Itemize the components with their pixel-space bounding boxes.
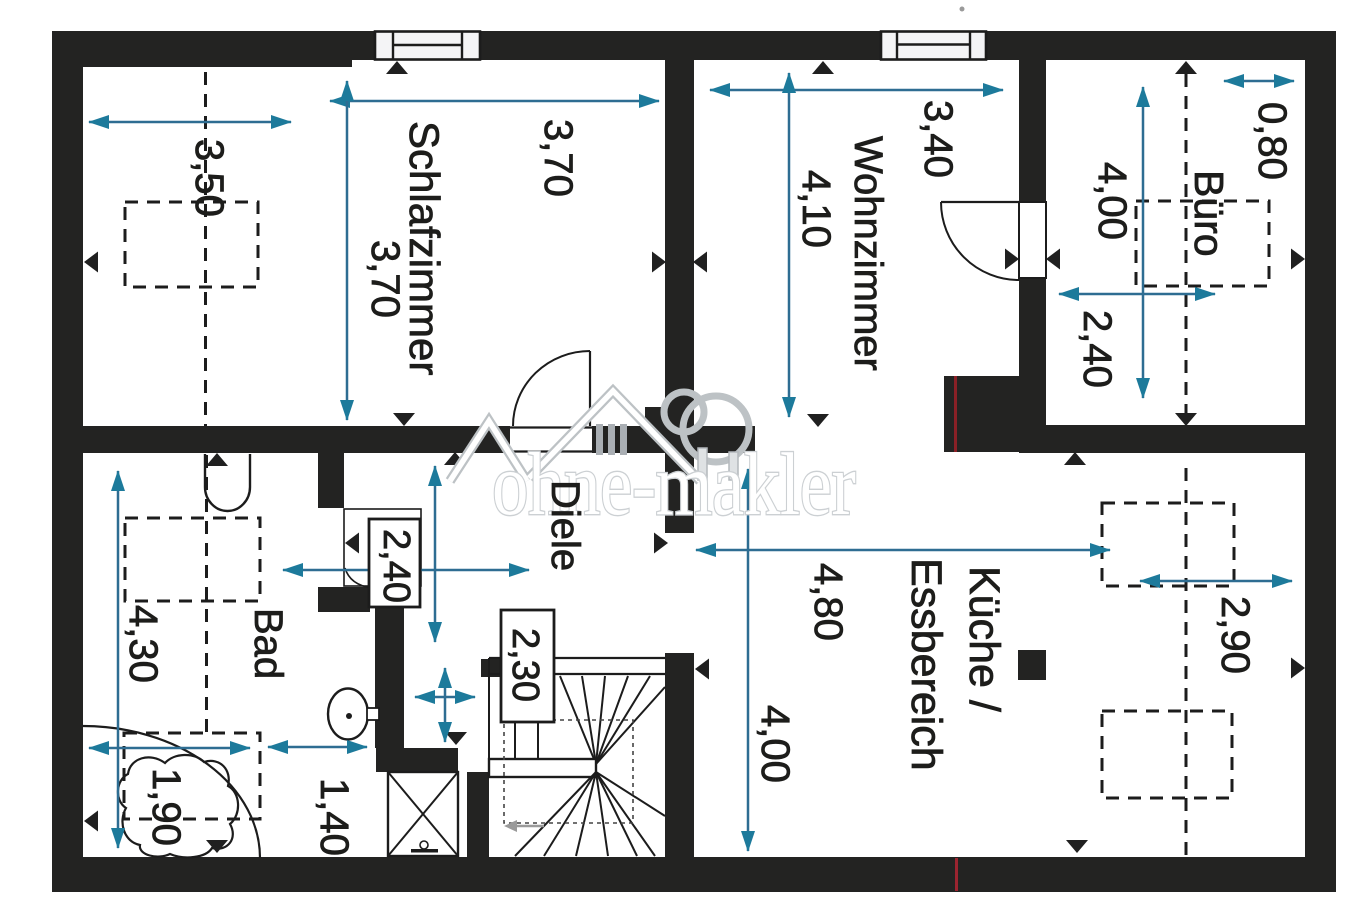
svg-text:Büro: Büro (1186, 170, 1232, 257)
svg-text:2,30: 2,30 (504, 628, 546, 702)
svg-text:2,40: 2,40 (1075, 310, 1119, 388)
svg-text:Diele: Diele (543, 480, 587, 571)
svg-text:4,10: 4,10 (794, 170, 838, 248)
svg-text:4,30: 4,30 (121, 605, 165, 683)
svg-text:Schlafzimmer: Schlafzimmer (401, 121, 448, 375)
svg-text:Essbereich: Essbereich (902, 558, 950, 771)
svg-text:3,50: 3,50 (187, 139, 231, 217)
svg-text:4,00: 4,00 (753, 705, 797, 783)
svg-text:3,70: 3,70 (363, 240, 407, 318)
svg-text:1,40: 1,40 (312, 778, 356, 856)
svg-text:Küche /: Küche / (960, 566, 1008, 712)
svg-text:2,40: 2,40 (375, 529, 417, 603)
svg-text:1,90: 1,90 (144, 768, 188, 846)
svg-text:3,40: 3,40 (916, 100, 960, 178)
svg-text:4,00: 4,00 (1090, 162, 1134, 240)
svg-text:4,80: 4,80 (806, 563, 850, 641)
svg-text:Wohnzimmer: Wohnzimmer (846, 136, 890, 371)
svg-text:2,90: 2,90 (1213, 596, 1257, 674)
svg-text:3,70: 3,70 (536, 119, 580, 197)
svg-text:Bad: Bad (246, 608, 290, 679)
svg-text:0,80: 0,80 (1250, 102, 1294, 180)
